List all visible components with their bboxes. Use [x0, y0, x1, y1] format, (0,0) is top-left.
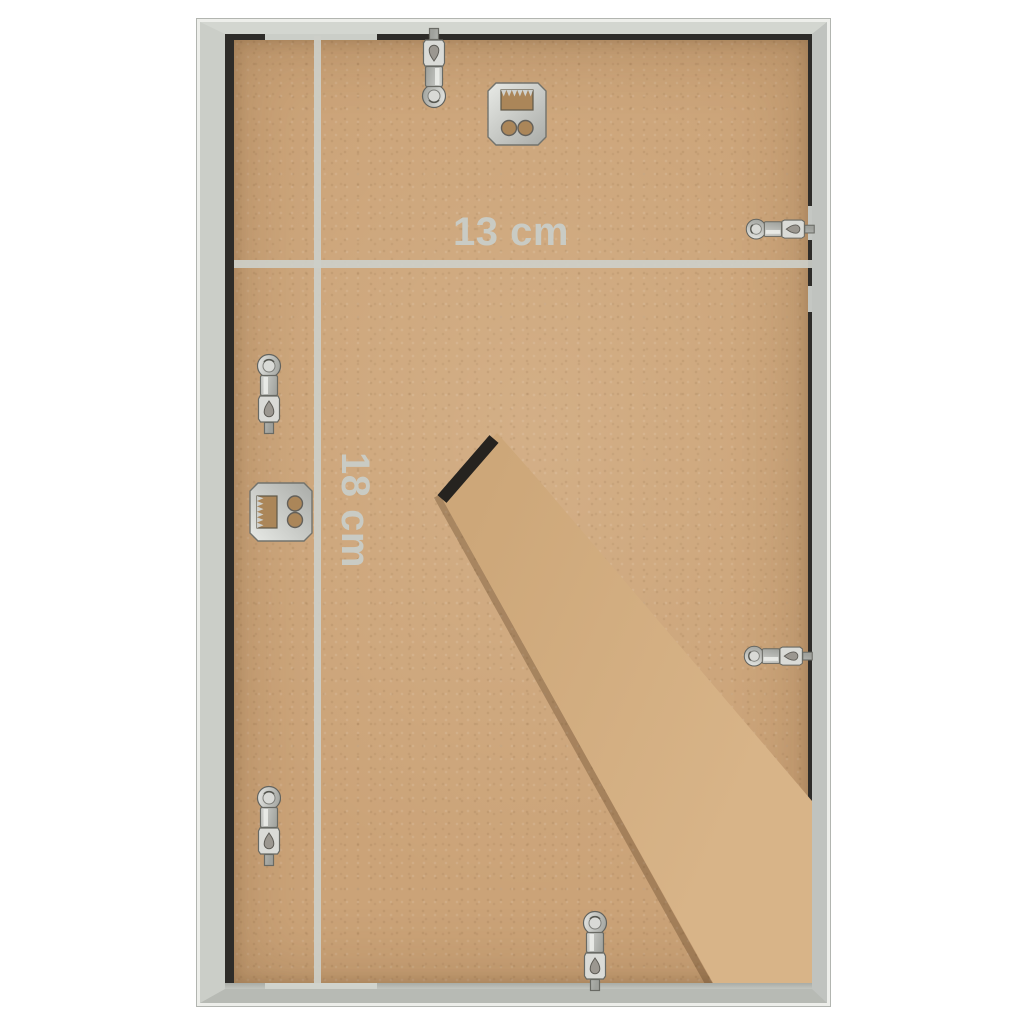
mounting-hardware: [0, 0, 1024, 1024]
swivel-clip-left-upper-icon: [258, 355, 281, 434]
swivel-clip-right-lower-icon: [744, 646, 812, 666]
swivel-clip-left-lower-icon: [258, 787, 281, 866]
sawtooth-hanger-top-icon: [488, 83, 546, 145]
sawtooth-hanger-left-icon: [250, 483, 312, 541]
swivel-clip-bottom-icon: [584, 912, 607, 991]
swivel-clip-right-upper-icon: [746, 219, 814, 239]
swivel-clip-top-icon: [423, 29, 446, 108]
product-photo: 13 cm 18 cm: [0, 0, 1024, 1024]
